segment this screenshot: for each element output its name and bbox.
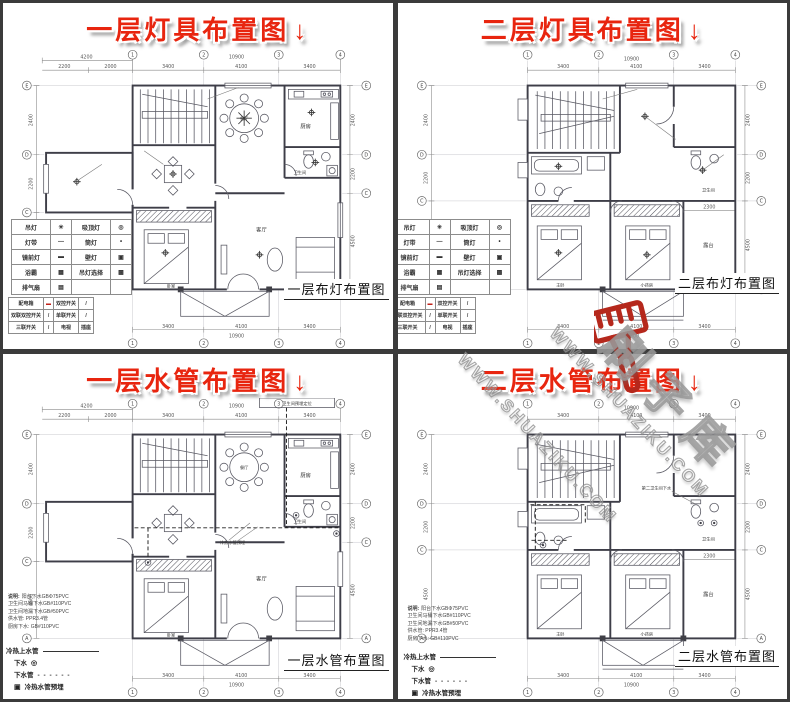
living-room: 客厅 xyxy=(221,226,334,282)
screenshot-root: 一层灯具布置图↓ 4200 2200 2000 3400 4100 3400 1… xyxy=(0,0,790,702)
legend-cell: 插座 xyxy=(460,322,475,334)
svg-text:D: D xyxy=(25,501,29,507)
right-bathroom: 卫生间 xyxy=(691,499,718,541)
stairs xyxy=(535,440,614,498)
dashed-line-symbol: - - - - - - xyxy=(435,676,468,688)
axis-lines xyxy=(32,409,362,686)
svg-text:4100: 4100 xyxy=(630,64,642,70)
svg-text:3: 3 xyxy=(672,53,675,59)
panel-floor2-lighting: 二层灯具布置图↓ 3400 4100 3400 10900 3400 4100 … xyxy=(398,3,788,349)
legend-cell: 吊灯 xyxy=(398,220,430,235)
svg-text:E: E xyxy=(25,83,28,89)
svg-text:10900: 10900 xyxy=(229,403,244,409)
legend-cell xyxy=(450,280,489,295)
legend-drain-label: 下水 xyxy=(14,658,27,670)
svg-text:10900: 10900 xyxy=(623,405,638,411)
legend-cell: 排气扇 xyxy=(398,280,430,295)
legend-cell: / xyxy=(460,310,475,322)
balcony xyxy=(602,291,683,320)
note-line: 卫生间地漏下水GB#50PVC xyxy=(408,621,471,629)
title-text: 一层水管布置图 xyxy=(86,366,289,396)
svg-text:4: 4 xyxy=(339,689,342,695)
panel-title: 一层水管布置图↓ xyxy=(3,361,393,398)
legend-cell: • xyxy=(111,235,132,250)
svg-text:D: D xyxy=(419,501,423,507)
svg-text:客厅: 客厅 xyxy=(256,574,267,582)
legend-cell: 配电箱 xyxy=(9,298,44,310)
drain-symbol: ◎ xyxy=(31,658,37,670)
legend-cell: 吊灯 xyxy=(12,220,51,235)
panel-title: 二层水管布置图↓ xyxy=(398,361,788,398)
living-room: 客厅 xyxy=(221,574,334,630)
terrace: 露台 xyxy=(703,241,714,249)
note-line: 厨房下水: GB#110PVC xyxy=(8,624,71,632)
legend-cell: 灯带 xyxy=(398,235,430,250)
legend-cell: 吸顶灯 xyxy=(72,220,111,235)
svg-text:3: 3 xyxy=(277,341,280,347)
left-bathroom xyxy=(531,505,604,544)
plumbing-legend: 冷热上水管 下水◎ 下水管- - - - - - ▣冷热水管预埋 xyxy=(6,646,99,694)
svg-text:3400: 3400 xyxy=(557,413,569,419)
panel-floor1-lighting: 一层灯具布置图↓ 4200 2200 2000 3400 4100 3400 1… xyxy=(3,3,393,349)
legend-cell: 三联开关 xyxy=(398,322,426,334)
svg-text:1: 1 xyxy=(526,689,529,695)
legend-cell: — xyxy=(51,235,72,250)
terrace: 露台 xyxy=(703,590,714,598)
svg-text:1: 1 xyxy=(526,401,529,407)
legend-cell: ▬ xyxy=(44,298,54,310)
svg-text:E: E xyxy=(365,432,368,438)
svg-text:2: 2 xyxy=(597,53,600,59)
svg-text:2: 2 xyxy=(597,401,600,407)
svg-text:主卧: 主卧 xyxy=(556,630,565,637)
legend-cell: 浴霸 xyxy=(12,265,51,280)
legend-cell: ◎ xyxy=(111,220,132,235)
solid-line-symbol xyxy=(43,651,99,652)
family-table xyxy=(152,505,194,543)
legend-cell: 吊灯选择 xyxy=(72,265,111,280)
legend-cell xyxy=(72,280,111,295)
legend-cell: 镜前灯 xyxy=(398,250,430,265)
svg-text:2200: 2200 xyxy=(423,520,429,532)
legend-cell: ▤ xyxy=(51,280,72,295)
svg-text:2400: 2400 xyxy=(423,463,429,475)
svg-text:10900: 10900 xyxy=(229,55,244,61)
legend-cell: / xyxy=(425,310,435,322)
legend-cell: 壁灯 xyxy=(72,250,111,265)
title-text: 二层灯具布置图 xyxy=(481,15,684,45)
svg-text:2200: 2200 xyxy=(29,526,35,538)
svg-text:第二卫生间下水: 第二卫生间下水 xyxy=(641,484,671,491)
panel-title: 一层灯具布置图↓ xyxy=(3,10,393,47)
svg-text:D: D xyxy=(759,501,763,507)
svg-text:2: 2 xyxy=(597,341,600,347)
svg-text:4100: 4100 xyxy=(630,324,642,330)
svg-text:2: 2 xyxy=(202,689,205,695)
svg-text:4500: 4500 xyxy=(745,588,751,600)
legend-drainpipe-label: 下水管 xyxy=(412,676,432,688)
doors xyxy=(558,107,683,213)
svg-text:2200: 2200 xyxy=(745,172,751,184)
svg-text:卧室: 卧室 xyxy=(167,631,175,638)
kids-bedroom: 小孩房 xyxy=(614,553,679,637)
porch xyxy=(181,640,269,665)
legend-cell: 吸顶灯 xyxy=(450,220,489,235)
svg-text:4200: 4200 xyxy=(80,55,92,61)
stairs xyxy=(535,91,614,149)
legend-cell: 吊灯选择 xyxy=(450,265,489,280)
svg-text:3: 3 xyxy=(672,689,675,695)
svg-text:4100: 4100 xyxy=(235,672,247,678)
axis-lines xyxy=(426,61,756,338)
svg-text:3: 3 xyxy=(672,401,675,407)
svg-text:E: E xyxy=(25,432,28,438)
axis-lines xyxy=(426,409,756,686)
svg-text:2000: 2000 xyxy=(104,413,116,419)
note-line: 卫生间马桶下水GB#110PVC xyxy=(8,601,71,609)
svg-text:1: 1 xyxy=(131,341,134,347)
legend-cell: 灯带 xyxy=(12,235,51,250)
legend-cell: 单联开关 xyxy=(54,310,79,322)
svg-text:10900: 10900 xyxy=(229,333,244,339)
legend-cell: • xyxy=(489,235,510,250)
master-bedroom: 主卧 xyxy=(531,205,589,289)
balcony xyxy=(602,640,683,669)
legend-cell: 双联双控开关 xyxy=(398,310,426,322)
svg-text:3400: 3400 xyxy=(162,413,174,419)
legend-embed-label: 冷热水管预埋 xyxy=(25,682,64,694)
svg-text:3400: 3400 xyxy=(557,672,569,678)
svg-text:3: 3 xyxy=(277,689,280,695)
panel-floor2-plumbing: 二层水管布置图↓ 3400 4100 3400 10900 3400 4100 … xyxy=(398,354,788,700)
legend-cell: ▩ xyxy=(489,265,510,280)
legend-cell: 电视 xyxy=(54,322,79,334)
svg-text:4: 4 xyxy=(733,53,736,59)
legend-cell: / xyxy=(44,322,54,334)
svg-text:4: 4 xyxy=(339,341,342,347)
legend-cell: / xyxy=(44,310,54,322)
down-arrow-icon: ↓ xyxy=(293,366,309,396)
svg-text:4100: 4100 xyxy=(235,324,247,330)
svg-text:D: D xyxy=(364,501,368,507)
kitchen: 厨房 xyxy=(288,89,338,139)
svg-text:2400: 2400 xyxy=(351,114,357,126)
svg-text:2: 2 xyxy=(202,341,205,347)
svg-text:冷热水管预埋: 冷热水管预埋 xyxy=(220,539,246,546)
legend-cell xyxy=(111,280,132,295)
legend-supply-label: 冷热上水管 xyxy=(404,652,437,664)
master-bedroom: 主卧 xyxy=(531,553,589,637)
down-arrow-icon: ↓ xyxy=(688,366,704,396)
svg-text:2400: 2400 xyxy=(745,463,751,475)
svg-text:4500: 4500 xyxy=(351,584,357,596)
note-line: 厨房下水: GB#110PVC xyxy=(408,636,471,644)
legend-cell: ◎ xyxy=(489,220,510,235)
note-line: 卫生间地漏下水GB#50PVC xyxy=(8,609,71,617)
svg-text:2: 2 xyxy=(202,53,205,59)
svg-text:4: 4 xyxy=(339,401,342,407)
svg-text:4: 4 xyxy=(733,689,736,695)
svg-text:1: 1 xyxy=(131,53,134,59)
legend-cell: ✳ xyxy=(429,220,450,235)
plumbing-notes: 说明: 阳台下水GBΦ75PVC卫生间马桶下水GB#110PVC卫生间地漏下水G… xyxy=(408,606,471,644)
svg-text:2200: 2200 xyxy=(58,64,70,70)
panel-floor1-plumbing: 一层水管布置图↓ 4200 2200 2000 3400 4100 3400 1… xyxy=(3,354,393,700)
notes-heading: 说明: xyxy=(8,594,20,602)
legend-drain-label: 下水 xyxy=(412,664,425,676)
svg-text:3: 3 xyxy=(672,341,675,347)
legend-cell: 筒灯 xyxy=(450,235,489,250)
svg-text:3400: 3400 xyxy=(303,324,315,330)
svg-text:卫生间预埋定位: 卫生间预埋定位 xyxy=(282,399,312,406)
kids-bedroom: 小孩房 xyxy=(614,205,679,289)
legend-cell: 单联开关 xyxy=(435,310,460,322)
svg-text:3400: 3400 xyxy=(698,64,710,70)
svg-text:1: 1 xyxy=(131,401,134,407)
doors xyxy=(558,455,683,561)
dashed-line-symbol: - - - - - - xyxy=(38,670,71,682)
porch xyxy=(181,291,269,316)
svg-text:E: E xyxy=(365,83,368,89)
legend-cell: — xyxy=(429,235,450,250)
svg-text:4100: 4100 xyxy=(630,672,642,678)
legend-cell: ▣ xyxy=(111,250,132,265)
down-arrow-icon: ↓ xyxy=(293,15,309,45)
svg-text:2400: 2400 xyxy=(29,463,35,475)
svg-text:4: 4 xyxy=(733,401,736,407)
svg-text:4200: 4200 xyxy=(80,403,92,409)
svg-text:4: 4 xyxy=(339,53,342,59)
svg-text:2200: 2200 xyxy=(745,520,751,532)
svg-text:3400: 3400 xyxy=(698,413,710,419)
legend-cell: / xyxy=(425,322,435,334)
svg-text:2200: 2200 xyxy=(351,516,357,528)
left-bathroom xyxy=(531,157,604,196)
stairs xyxy=(140,438,209,492)
svg-text:D: D xyxy=(759,153,763,159)
legend-supply-label: 冷热上水管 xyxy=(6,646,39,658)
svg-text:1: 1 xyxy=(131,689,134,695)
dining-table: 餐厅 xyxy=(220,443,268,491)
legend-cell: 双联双控开关 xyxy=(9,310,44,322)
note-line: 卫生间马桶下水GB#110PVC xyxy=(408,613,471,621)
svg-text:卧室: 卧室 xyxy=(167,282,175,289)
svg-text:主卧: 主卧 xyxy=(556,282,565,289)
legend-cell: / xyxy=(460,298,475,310)
drawing-caption: 二层布灯布置图 xyxy=(675,273,779,294)
svg-text:2300: 2300 xyxy=(703,205,715,211)
svg-text:2400: 2400 xyxy=(351,463,357,475)
svg-text:4500: 4500 xyxy=(423,588,429,600)
svg-text:2200: 2200 xyxy=(351,168,357,180)
svg-text:D: D xyxy=(419,153,423,159)
legend-cell: ▩ xyxy=(111,265,132,280)
svg-text:10900: 10900 xyxy=(623,682,638,688)
water-pipes: 卫生间预埋定位 冷热水管预埋 xyxy=(135,398,340,565)
plumbing-notes: 说明: 阳台下水GBΦ75PVC卫生间马桶下水GB#110PVC卫生间地漏下水G… xyxy=(8,594,71,632)
legend-cell: 浴霸 xyxy=(398,265,430,280)
bedroom: 卧室 xyxy=(136,211,211,290)
svg-text:卫生间: 卫生间 xyxy=(702,186,715,193)
embed-symbol: ▣ xyxy=(412,688,419,700)
svg-text:3400: 3400 xyxy=(162,324,174,330)
title-text: 二层水管布置图 xyxy=(481,366,684,396)
svg-text:2: 2 xyxy=(202,401,205,407)
solid-line-symbol xyxy=(440,657,496,658)
svg-text:2200: 2200 xyxy=(29,178,35,190)
legend-cell: ▦ xyxy=(429,265,450,280)
svg-text:3400: 3400 xyxy=(557,324,569,330)
svg-text:1: 1 xyxy=(526,341,529,347)
svg-text:2300: 2300 xyxy=(703,553,715,559)
svg-text:3400: 3400 xyxy=(162,64,174,70)
svg-text:E: E xyxy=(759,432,762,438)
legend-cell: 排气扇 xyxy=(12,280,51,295)
switch-legend-table: 配电箱▬双控开关/双联双控开关/单联开关/三联开关/电视插座 xyxy=(398,297,476,334)
svg-text:4500: 4500 xyxy=(745,239,751,251)
legend-cell: ▣ xyxy=(489,250,510,265)
lighting-legend-table: 吊灯✳吸顶灯◎灯带—筒灯•镜前灯▬壁灯▣浴霸▦吊灯选择▩排气扇▤ xyxy=(398,219,511,295)
legend-cell: 双控开关 xyxy=(54,298,79,310)
legend-cell: 镜前灯 xyxy=(12,250,51,265)
svg-text:小孩房: 小孩房 xyxy=(640,282,653,289)
legend-cell: 双控开关 xyxy=(435,298,460,310)
stairs xyxy=(140,89,209,143)
svg-text:4100: 4100 xyxy=(235,413,247,419)
svg-text:露台: 露台 xyxy=(703,590,714,598)
lighting-legend-table: 吊灯✳吸顶灯◎灯带—筒灯•镜前灯▬壁灯▣浴霸▦吊灯选择▩排气扇▤ xyxy=(11,219,132,295)
svg-text:3400: 3400 xyxy=(303,413,315,419)
svg-text:2: 2 xyxy=(597,689,600,695)
svg-text:客厅: 客厅 xyxy=(256,226,267,234)
legend-cell: ✳ xyxy=(51,220,72,235)
svg-text:E: E xyxy=(759,83,762,89)
svg-text:D: D xyxy=(364,153,368,159)
bathroom: 卫生间 xyxy=(294,499,338,524)
svg-text:3: 3 xyxy=(277,53,280,59)
panel-title: 二层灯具布置图↓ xyxy=(398,10,788,47)
legend-cell: 电视 xyxy=(435,322,460,334)
legend-cell xyxy=(489,280,510,295)
svg-text:3: 3 xyxy=(277,401,280,407)
svg-text:3400: 3400 xyxy=(303,64,315,70)
embed-symbol: ▣ xyxy=(14,682,21,694)
note-line: 供水管: PPR3.4管 xyxy=(408,628,471,636)
note-line: 供水管: PPR3.4管 xyxy=(8,616,71,624)
legend-cell: 三联开关 xyxy=(9,322,44,334)
svg-text:厨房: 厨房 xyxy=(300,122,311,130)
legend-cell: ▤ xyxy=(429,280,450,295)
svg-text:10900: 10900 xyxy=(623,57,638,63)
svg-text:卫生间: 卫生间 xyxy=(702,535,715,542)
legend-cell: ▬ xyxy=(425,298,435,310)
legend-cell: / xyxy=(79,310,94,322)
svg-text:3400: 3400 xyxy=(698,672,710,678)
legend-drainpipe-label: 下水管 xyxy=(14,670,34,682)
svg-text:2400: 2400 xyxy=(423,114,429,126)
drawing-caption: 一层布灯布置图 xyxy=(284,279,388,300)
drawing-caption: 二层水管布置图 xyxy=(675,646,779,667)
bedroom: 卧室 xyxy=(136,559,211,638)
legend-cell: 壁灯 xyxy=(450,250,489,265)
svg-text:1: 1 xyxy=(526,53,529,59)
legend-cell: 筒灯 xyxy=(72,235,111,250)
svg-text:2200: 2200 xyxy=(423,172,429,184)
svg-text:小孩房: 小孩房 xyxy=(640,630,653,637)
svg-text:10900: 10900 xyxy=(229,682,244,688)
legend-cell: ▬ xyxy=(429,250,450,265)
svg-text:4500: 4500 xyxy=(351,235,357,247)
water-pipes: 第二卫生间下水 xyxy=(530,484,717,550)
svg-text:厨房: 厨房 xyxy=(300,470,311,478)
legend-cell: 插座 xyxy=(79,322,94,334)
right-bathroom: 卫生间 xyxy=(691,151,718,193)
legend-embed-label: 冷热水管预埋 xyxy=(422,688,461,700)
windows xyxy=(44,432,343,641)
svg-text:D: D xyxy=(25,153,29,159)
svg-text:露台: 露台 xyxy=(703,241,714,249)
svg-text:3400: 3400 xyxy=(303,672,315,678)
svg-text:3400: 3400 xyxy=(698,324,710,330)
svg-text:2400: 2400 xyxy=(745,114,751,126)
title-text: 一层灯具布置图 xyxy=(86,15,289,45)
svg-text:10900: 10900 xyxy=(623,333,638,339)
plumbing-legend: 冷热上水管 下水◎ 下水管- - - - - - ▣冷热水管预埋 xyxy=(404,652,497,700)
legend-cell: ▬ xyxy=(51,250,72,265)
drawing-caption: 一层水管布置图 xyxy=(284,650,388,671)
svg-text:4100: 4100 xyxy=(235,64,247,70)
notes-heading: 说明: xyxy=(408,606,420,614)
svg-text:2400: 2400 xyxy=(29,114,35,126)
down-arrow-icon: ↓ xyxy=(688,15,704,45)
legend-cell: 配电箱 xyxy=(398,298,426,310)
legend-cell: ▦ xyxy=(51,265,72,280)
svg-text:3400: 3400 xyxy=(557,64,569,70)
svg-text:4: 4 xyxy=(733,341,736,347)
svg-text:2200: 2200 xyxy=(58,413,70,419)
svg-text:E: E xyxy=(420,432,423,438)
svg-text:2000: 2000 xyxy=(104,64,116,70)
svg-text:3400: 3400 xyxy=(162,672,174,678)
svg-text:E: E xyxy=(420,83,423,89)
drain-symbol: ◎ xyxy=(429,664,435,676)
svg-text:餐厅: 餐厅 xyxy=(240,464,248,471)
svg-text:4100: 4100 xyxy=(630,413,642,419)
switch-legend-table: 配电箱▬双控开关/双联双控开关/单联开关/三联开关/电视插座 xyxy=(8,297,94,334)
legend-cell: / xyxy=(79,298,94,310)
kitchen: 厨房 xyxy=(288,438,338,488)
